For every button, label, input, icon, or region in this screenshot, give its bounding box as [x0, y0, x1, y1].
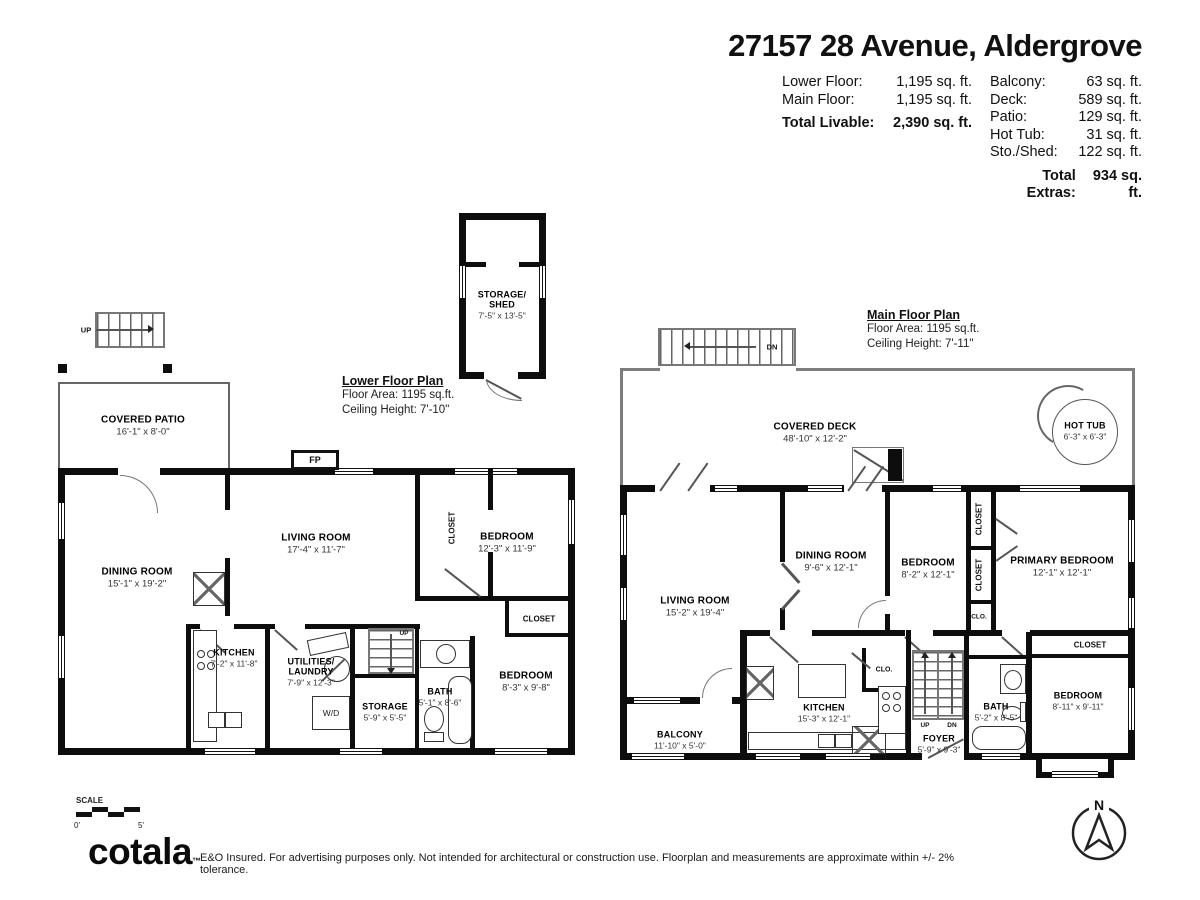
post [58, 364, 67, 373]
room-name: BALCONY [654, 730, 706, 740]
stat-value: 1,195 sq. ft. [896, 92, 972, 110]
toilet-tank [424, 732, 444, 742]
room-name: LIVING ROOM [660, 596, 729, 607]
room-label-bath: BATH 5'-2" x 8'-5" [975, 702, 1018, 723]
room-name: BEDROOM [478, 532, 536, 543]
stove-burner [197, 662, 205, 670]
room-label-bedroom2: BEDROOM 8'-11" x 9'-11" [1052, 691, 1103, 712]
door-opening [118, 468, 160, 475]
window [756, 753, 800, 760]
room-label-covered-patio: COVERED PATIO 16'-1" x 8'-0" [101, 415, 185, 438]
scale-start: 0' [74, 821, 80, 830]
bath-sink [1004, 670, 1022, 690]
room-label-balcony: BALCONY 11'-10" x 5'-0" [654, 730, 706, 751]
deck-wall [620, 368, 660, 371]
stat-label: Balcony: [990, 74, 1046, 92]
room-name: KITCHEN [211, 648, 258, 658]
stairs-up-label: UP [399, 630, 408, 637]
wall [964, 630, 969, 754]
stat-row: Hot Tub: 31 sq. ft. [990, 127, 1142, 145]
room-label-deck: COVERED DECK 48'-10" x 12'-2" [774, 422, 857, 445]
kitchen-sink [835, 734, 852, 748]
wall [505, 633, 569, 637]
wall [966, 600, 996, 604]
room-label-bath: BATH 5'-1" x 8'-6" [419, 687, 462, 708]
logo-text: cotala [88, 831, 192, 872]
scale-end: 5' [138, 821, 144, 830]
room-name: PRIMARY BEDROOM [1010, 556, 1114, 567]
arrowhead [921, 652, 929, 658]
wall [862, 648, 866, 692]
wall [488, 552, 493, 600]
closet-label: CLO. [876, 667, 893, 674]
room-label-hot-tub: HOT TUB 6'-3" x 6'-3" [1064, 421, 1107, 442]
room-name: STORAGE/ [478, 290, 526, 300]
window [58, 503, 65, 539]
scale-block [92, 807, 108, 812]
window [808, 485, 842, 492]
room-label-utilities: UTILITIES/ LAUNDRY 7'-9" x 12'-3" [287, 657, 335, 688]
window [1128, 520, 1135, 562]
wall [415, 596, 575, 601]
compass-n: N [1094, 797, 1104, 813]
deck-wall [796, 368, 1135, 371]
room-name: SHED [478, 300, 526, 310]
window [1020, 485, 1080, 492]
window [58, 636, 65, 678]
fireplace: FP [291, 450, 339, 470]
page-title: 27157 28 Avenue, Aldergrove [728, 28, 1142, 64]
stairs-dn-label: DN [947, 722, 956, 729]
deck-step-block [888, 449, 902, 481]
room-name: LIVING ROOM [281, 533, 350, 544]
plan-title: Lower Floor Plan [342, 374, 454, 388]
stat-value: 589 sq. ft. [1078, 92, 1142, 110]
room-label-kitchen: KITCHEN 15'-3" x 12'-1" [798, 703, 850, 724]
arrowhead [948, 652, 956, 658]
stairs-up-label: UP [81, 326, 91, 335]
room-dims: 7'-5" x 13'-5" [478, 311, 526, 321]
room-name: COVERED PATIO [101, 415, 185, 426]
ironing-board [307, 632, 349, 656]
room-name: DINING ROOM [795, 551, 866, 562]
window [1128, 688, 1135, 730]
kitchen-sink [208, 712, 225, 728]
toilet-tank [1020, 702, 1026, 722]
stairs-up-label: UP [920, 722, 929, 729]
fridge [746, 666, 774, 700]
wall [415, 468, 420, 598]
arrowhead [387, 668, 395, 674]
wall [352, 674, 418, 678]
room-dims: 12'-3" x 11'-9" [478, 544, 536, 555]
wall [225, 468, 230, 510]
wall [780, 492, 785, 562]
room-name: BEDROOM [901, 558, 955, 569]
stat-value: 1,195 sq. ft. [896, 74, 972, 92]
room-label-storage: STORAGE 5'-9" x 5'-5" [362, 702, 408, 723]
room-label-kitchen: KITCHEN 7'-2" x 11'-8" [211, 648, 258, 669]
room-dims: 5'-9" x 9'-3" [918, 745, 961, 755]
door-leaf [445, 568, 481, 597]
door-leaf [769, 636, 798, 663]
stat-row: Main Floor: 1,195 sq. ft. [782, 92, 972, 110]
header: 27157 28 Avenue, Aldergrove Lower Floor:… [728, 28, 1142, 203]
wall [966, 546, 996, 550]
door-arc [858, 600, 886, 628]
room-dims: 15'-2" x 19'-4" [660, 608, 729, 619]
kitchen-sink [818, 734, 835, 748]
room-dims: 17'-4" x 11'-7" [281, 545, 350, 556]
stat-label: Patio: [990, 109, 1027, 127]
stove-burner [893, 704, 901, 712]
wall [505, 601, 509, 637]
room-dims: 16'-1" x 8'-0" [101, 427, 185, 438]
total-livable: Total Livable: 2,390 sq. ft. [782, 115, 972, 133]
stairs-rail [937, 650, 939, 720]
room-label-shed: STORAGE/ SHED 7'-5" x 13'-5" [478, 290, 526, 321]
room-dims: 9'-6" x 12'-1" [795, 563, 866, 574]
stairs-arrow [390, 634, 392, 668]
window [1128, 598, 1135, 628]
room-label-bedroom1: BEDROOM 12'-3" x 11'-9" [478, 532, 536, 555]
window [634, 697, 680, 704]
stat-value: 63 sq. ft. [1086, 74, 1142, 92]
room-name: DINING ROOM [101, 567, 172, 578]
stat-value: 31 sq. ft. [1086, 127, 1142, 145]
stat-label: Main Floor: [782, 92, 855, 110]
room-name: LAUNDRY [287, 667, 335, 677]
wall [519, 262, 539, 267]
room-label-primary: PRIMARY BEDROOM 12'-1" x 12'-1" [1010, 556, 1114, 579]
stairs-arrow [96, 329, 148, 331]
wall [350, 624, 355, 748]
disclaimer: E&O Insured. For advertising purposes on… [200, 852, 960, 876]
room-dims: 5'-9" x 5'-5" [362, 713, 408, 723]
deck-wall [1132, 368, 1135, 487]
window [620, 588, 627, 620]
wall [466, 262, 486, 267]
stat-value: 934 sq. ft. [1076, 168, 1142, 203]
arrowhead [684, 342, 690, 350]
stairs-dn-label: DN [767, 343, 778, 352]
room-name: KITCHEN [798, 703, 850, 713]
window [335, 468, 373, 475]
scale-block [108, 812, 124, 817]
stat-row: Patio: 129 sq. ft. [990, 109, 1142, 127]
room-dims: 12'-1" x 12'-1" [1010, 568, 1114, 579]
window [340, 748, 382, 755]
room-dims: 11'-10" x 5'-0" [654, 741, 706, 751]
stat-value: 129 sq. ft. [1078, 109, 1142, 127]
extras-column: Balcony: 63 sq. ft. Deck: 589 sq. ft. Pa… [990, 74, 1142, 203]
plan-floor-area: Floor Area: 1195 sq.ft. [342, 388, 454, 403]
scale-block [76, 812, 92, 817]
washer-dryer: W/D [312, 696, 350, 730]
stat-row: Sto./Shed: 122 sq. ft. [990, 144, 1142, 162]
wall [265, 624, 270, 748]
wall [1026, 632, 1032, 753]
closet-label: CLO. [971, 614, 987, 621]
bath-sink [436, 644, 456, 664]
room-name: STORAGE [362, 702, 408, 712]
window [982, 753, 1020, 760]
window [495, 748, 547, 755]
stat-label: Total Livable: [782, 115, 874, 133]
room-label-bedroom1: BEDROOM 8'-2" x 12'-1" [901, 558, 955, 581]
wall [906, 630, 911, 754]
door-arc [120, 475, 158, 513]
closet-label: CLOSET [975, 559, 984, 591]
room-dims: 5'-1" x 8'-6" [419, 698, 462, 708]
room-name: BEDROOM [1052, 691, 1103, 701]
window [205, 748, 255, 755]
stat-value: 2,390 sq. ft. [893, 115, 972, 133]
room-name: BEDROOM [499, 671, 553, 682]
room-label-dining: DINING ROOM 15'-1" x 19'-2" [101, 567, 172, 590]
room-dims: 48'-10" x 12'-2" [774, 434, 857, 445]
floorplan-sheet: 27157 28 Avenue, Aldergrove Lower Floor:… [0, 0, 1200, 900]
window [620, 515, 627, 555]
room-dims: 8'-2" x 12'-1" [901, 570, 955, 581]
door-opening [770, 630, 812, 636]
door-opening [200, 624, 234, 629]
angled-wall [781, 589, 801, 610]
window [632, 753, 684, 760]
wall [1032, 654, 1130, 658]
window [826, 753, 870, 760]
room-name: COVERED DECK [774, 422, 857, 433]
plan-ceiling-height: Ceiling Height: 7'-11" [867, 337, 979, 352]
room-dims: 6'-3" x 6'-3" [1064, 432, 1107, 442]
room-dims: 8'-11" x 9'-11" [1052, 702, 1103, 712]
total-extras: Total Extras: 934 sq. ft. [990, 168, 1142, 203]
window [459, 266, 466, 298]
window [539, 266, 546, 298]
wall [225, 558, 230, 616]
main-plan-head: Main Floor Plan Floor Area: 1195 sq.ft. … [867, 308, 979, 352]
stairs-arrow [690, 346, 756, 348]
stairs-arrow [951, 658, 953, 714]
stat-label: Sto./Shed: [990, 144, 1058, 162]
plan-title: Main Floor Plan [867, 308, 979, 322]
deck-wall [620, 368, 623, 487]
room-name: BATH [419, 687, 462, 697]
compass-needle [1086, 815, 1112, 849]
toilet [424, 706, 444, 732]
wall [991, 492, 996, 636]
window [715, 485, 737, 492]
room-dims: 8'-3" x 9'-8" [499, 683, 553, 694]
room-dims: 15'-3" x 12'-1" [798, 714, 850, 724]
scale-bar: SCALE 0' 5' [76, 796, 140, 817]
door-opening [484, 372, 518, 379]
kitchen-island [798, 664, 846, 698]
room-label-living: LIVING ROOM 15'-2" x 19'-4" [660, 596, 729, 619]
room-label-living: LIVING ROOM 17'-4" x 11'-7" [281, 533, 350, 556]
arrowhead [148, 325, 154, 333]
stat-row: Balcony: 63 sq. ft. [990, 74, 1142, 92]
stove-burner [882, 692, 890, 700]
window [1052, 771, 1098, 778]
window [933, 485, 961, 492]
door-opening [275, 624, 305, 629]
room-name: BATH [975, 702, 1018, 712]
stat-label: Deck: [990, 92, 1027, 110]
stat-label: Total Extras: [990, 168, 1076, 203]
door-arc [486, 379, 522, 401]
room-dims: 5'-2" x 8'-5" [975, 713, 1018, 723]
window [568, 500, 575, 544]
wall [186, 624, 191, 748]
stove-burner [882, 704, 890, 712]
room-name: FOYER [918, 734, 961, 744]
stairs-arrow [924, 658, 926, 714]
room-dims: 15'-1" x 19'-2" [101, 579, 172, 590]
door-opening [700, 697, 732, 704]
door-leaf [996, 518, 1018, 534]
room-label-foyer: FOYER 5'-9" x 9'-3" [918, 734, 961, 755]
room-label-dining: DINING ROOM 9'-6" x 12'-1" [795, 551, 866, 574]
room-name: HOT TUB [1064, 421, 1107, 431]
wall [966, 655, 1028, 659]
scale-block [124, 807, 140, 812]
livable-column: Lower Floor: 1,195 sq. ft. Main Floor: 1… [782, 74, 972, 203]
bathtub [972, 726, 1026, 750]
closet-label: CLOSET [1074, 641, 1106, 650]
stat-row: Deck: 589 sq. ft. [990, 92, 1142, 110]
scale-ribbon: 0' 5' [76, 807, 140, 817]
kitchen-sink [225, 712, 242, 728]
plan-floor-area: Floor Area: 1195 sq.ft. [867, 322, 979, 337]
pantry-cabinet [193, 572, 225, 606]
room-name: UTILITIES/ [287, 657, 335, 667]
fireplace-label: FP [309, 455, 321, 465]
lower-plan-head: Lower Floor Plan Floor Area: 1195 sq.ft.… [342, 374, 454, 418]
window [455, 468, 517, 475]
stove-burner [197, 650, 205, 658]
washer-dryer-label: W/D [323, 708, 340, 718]
stat-row: Lower Floor: 1,195 sq. ft. [782, 74, 972, 92]
post [163, 364, 172, 373]
closet-label: CLOSET [448, 512, 457, 544]
closet-label: CLOSET [523, 615, 555, 624]
room-dims: 7'-2" x 11'-8" [211, 659, 258, 669]
closet-label: CLOSET [975, 503, 984, 535]
wall [885, 492, 890, 596]
cotala-logo: cotala™ [88, 831, 200, 873]
room-dims: 7'-9" x 12'-3" [287, 678, 335, 688]
north-arrow-icon: N [1066, 792, 1132, 864]
stat-label: Hot Tub: [990, 127, 1045, 145]
stat-value: 122 sq. ft. [1078, 144, 1142, 162]
stat-label: Lower Floor: [782, 74, 863, 92]
wall [488, 468, 493, 510]
room-label-bedroom2: BEDROOM 8'-3" x 9'-8" [499, 671, 553, 694]
plan-ceiling-height: Ceiling Height: 7'-10" [342, 403, 454, 418]
door-leaf [274, 629, 297, 650]
stove-burner [893, 692, 901, 700]
scale-label: SCALE [76, 796, 103, 805]
door-arc [702, 668, 732, 698]
area-stats: Lower Floor: 1,195 sq. ft. Main Floor: 1… [728, 74, 1142, 203]
